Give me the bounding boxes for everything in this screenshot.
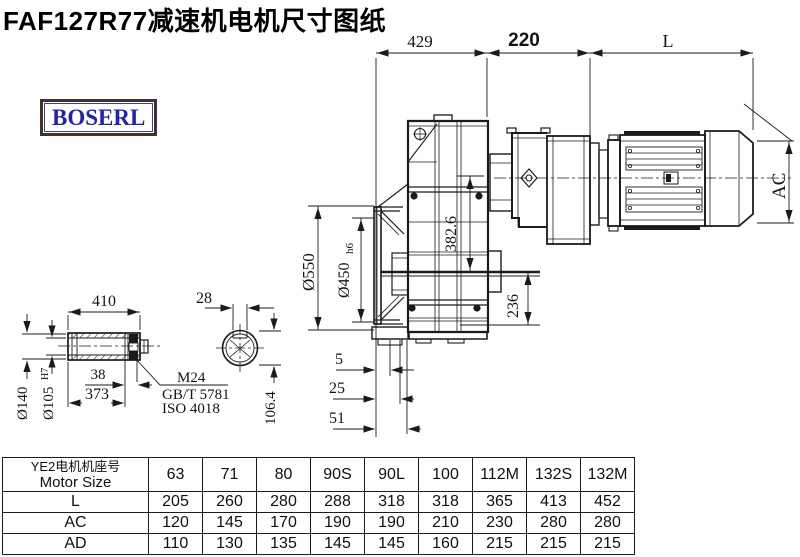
size-table-col-header: 63 xyxy=(149,458,203,492)
size-table-col-header: 71 xyxy=(203,458,257,492)
dim-AC-label: AC xyxy=(769,173,790,199)
size-table-col-header: 112M xyxy=(473,458,527,492)
dim-5-label: 5 xyxy=(335,351,343,368)
dim-28-label: 28 xyxy=(196,290,212,307)
size-table-cell: 120 xyxy=(149,513,203,534)
dim-220-label: 220 xyxy=(508,30,540,51)
dim-L-label: L xyxy=(663,31,674,51)
size-table-col-header: 90L xyxy=(365,458,419,492)
bolt-spec-label: M24 xyxy=(177,370,206,386)
size-table-cell: 280 xyxy=(257,492,311,513)
size-table-cell: 145 xyxy=(365,534,419,555)
size-table-col-header: 100 xyxy=(419,458,473,492)
page: { "title": "FAF127R77减速机电机尺寸图纸", "logo":… xyxy=(0,0,800,557)
size-table-cell: 288 xyxy=(311,492,365,513)
size-table-cell: 210 xyxy=(419,513,473,534)
size-table-cell: 145 xyxy=(203,513,257,534)
size-table-cell: 135 xyxy=(257,534,311,555)
size-table-cell: 452 xyxy=(581,492,635,513)
size-table-cell: 215 xyxy=(473,534,527,555)
dim-25-label: 25 xyxy=(329,380,345,397)
size-table-cell: 280 xyxy=(581,513,635,534)
size-table-cell: 260 xyxy=(203,492,257,513)
size-table-cell: 215 xyxy=(581,534,635,555)
dim-450-label: Ø450 xyxy=(336,262,353,298)
drawing-linework xyxy=(22,53,794,437)
dim-105-tol-label: H7 xyxy=(40,368,51,380)
size-table-col-header: 132S xyxy=(527,458,581,492)
size-table-cell: 130 xyxy=(203,534,257,555)
size-table-cell: 205 xyxy=(149,492,203,513)
shaft-end-view xyxy=(205,304,281,383)
size-table: YE2电机机座号Motor Size63718090S90L100112M132… xyxy=(2,457,635,555)
size-table-body: YE2电机机座号Motor Size63718090S90L100112M132… xyxy=(3,458,635,555)
size-table-cell: 215 xyxy=(527,534,581,555)
size-table-col-header: 80 xyxy=(257,458,311,492)
size-table-row-label: L xyxy=(3,492,149,513)
dim-51-label: 51 xyxy=(329,410,345,427)
motor-side-view xyxy=(494,131,791,231)
size-table-cell: 110 xyxy=(149,534,203,555)
size-table-row-label: AC xyxy=(3,513,149,534)
size-table-cell: 170 xyxy=(257,513,311,534)
dim-105-label: Ø105 xyxy=(41,387,57,420)
size-table-row-label: AD xyxy=(3,534,149,555)
size-table-cell: 413 xyxy=(527,492,581,513)
size-table-header-row: YE2电机机座号Motor Size63718090S90L100112M132… xyxy=(3,458,635,492)
dim-410-label: 410 xyxy=(92,293,116,310)
dim-429-label: 429 xyxy=(407,32,433,51)
fan-cowl xyxy=(705,131,753,226)
dim-38-label: 38 xyxy=(91,367,106,383)
dim-450-tol-label: h6 xyxy=(344,243,356,255)
dim-550-label: Ø550 xyxy=(299,253,318,291)
adapter-housing xyxy=(507,128,608,244)
size-table-row-AC: AC120145170190190210230280280 xyxy=(3,513,635,534)
output-flange xyxy=(372,184,408,345)
dim-382-label: 382.6 xyxy=(443,216,460,252)
size-table-row-AD: AD110130135145145160215215215 xyxy=(3,534,635,555)
size-table-cell: 365 xyxy=(473,492,527,513)
size-table-cell: 190 xyxy=(311,513,365,534)
size-table-cell: 280 xyxy=(527,513,581,534)
size-table-cell: 230 xyxy=(473,513,527,534)
dim-236-label: 236 xyxy=(505,294,522,318)
size-table-row-L: L205260280288318318365413452 xyxy=(3,492,635,513)
dim-373-label: 373 xyxy=(85,386,109,403)
size-table-col-header: 90S xyxy=(311,458,365,492)
standard-iso-label: ISO 4018 xyxy=(162,401,220,417)
size-table-cell: 318 xyxy=(365,492,419,513)
size-table-cell: 318 xyxy=(419,492,473,513)
size-table-cell: 190 xyxy=(365,513,419,534)
motor-size-header-cell: YE2电机机座号Motor Size xyxy=(3,458,149,492)
size-table-cell: 160 xyxy=(419,534,473,555)
size-table-cell: 145 xyxy=(311,534,365,555)
size-table-col-header: 132M xyxy=(581,458,635,492)
dim-106-label: 106.4 xyxy=(263,391,279,425)
dim-140-label: Ø140 xyxy=(15,387,31,420)
